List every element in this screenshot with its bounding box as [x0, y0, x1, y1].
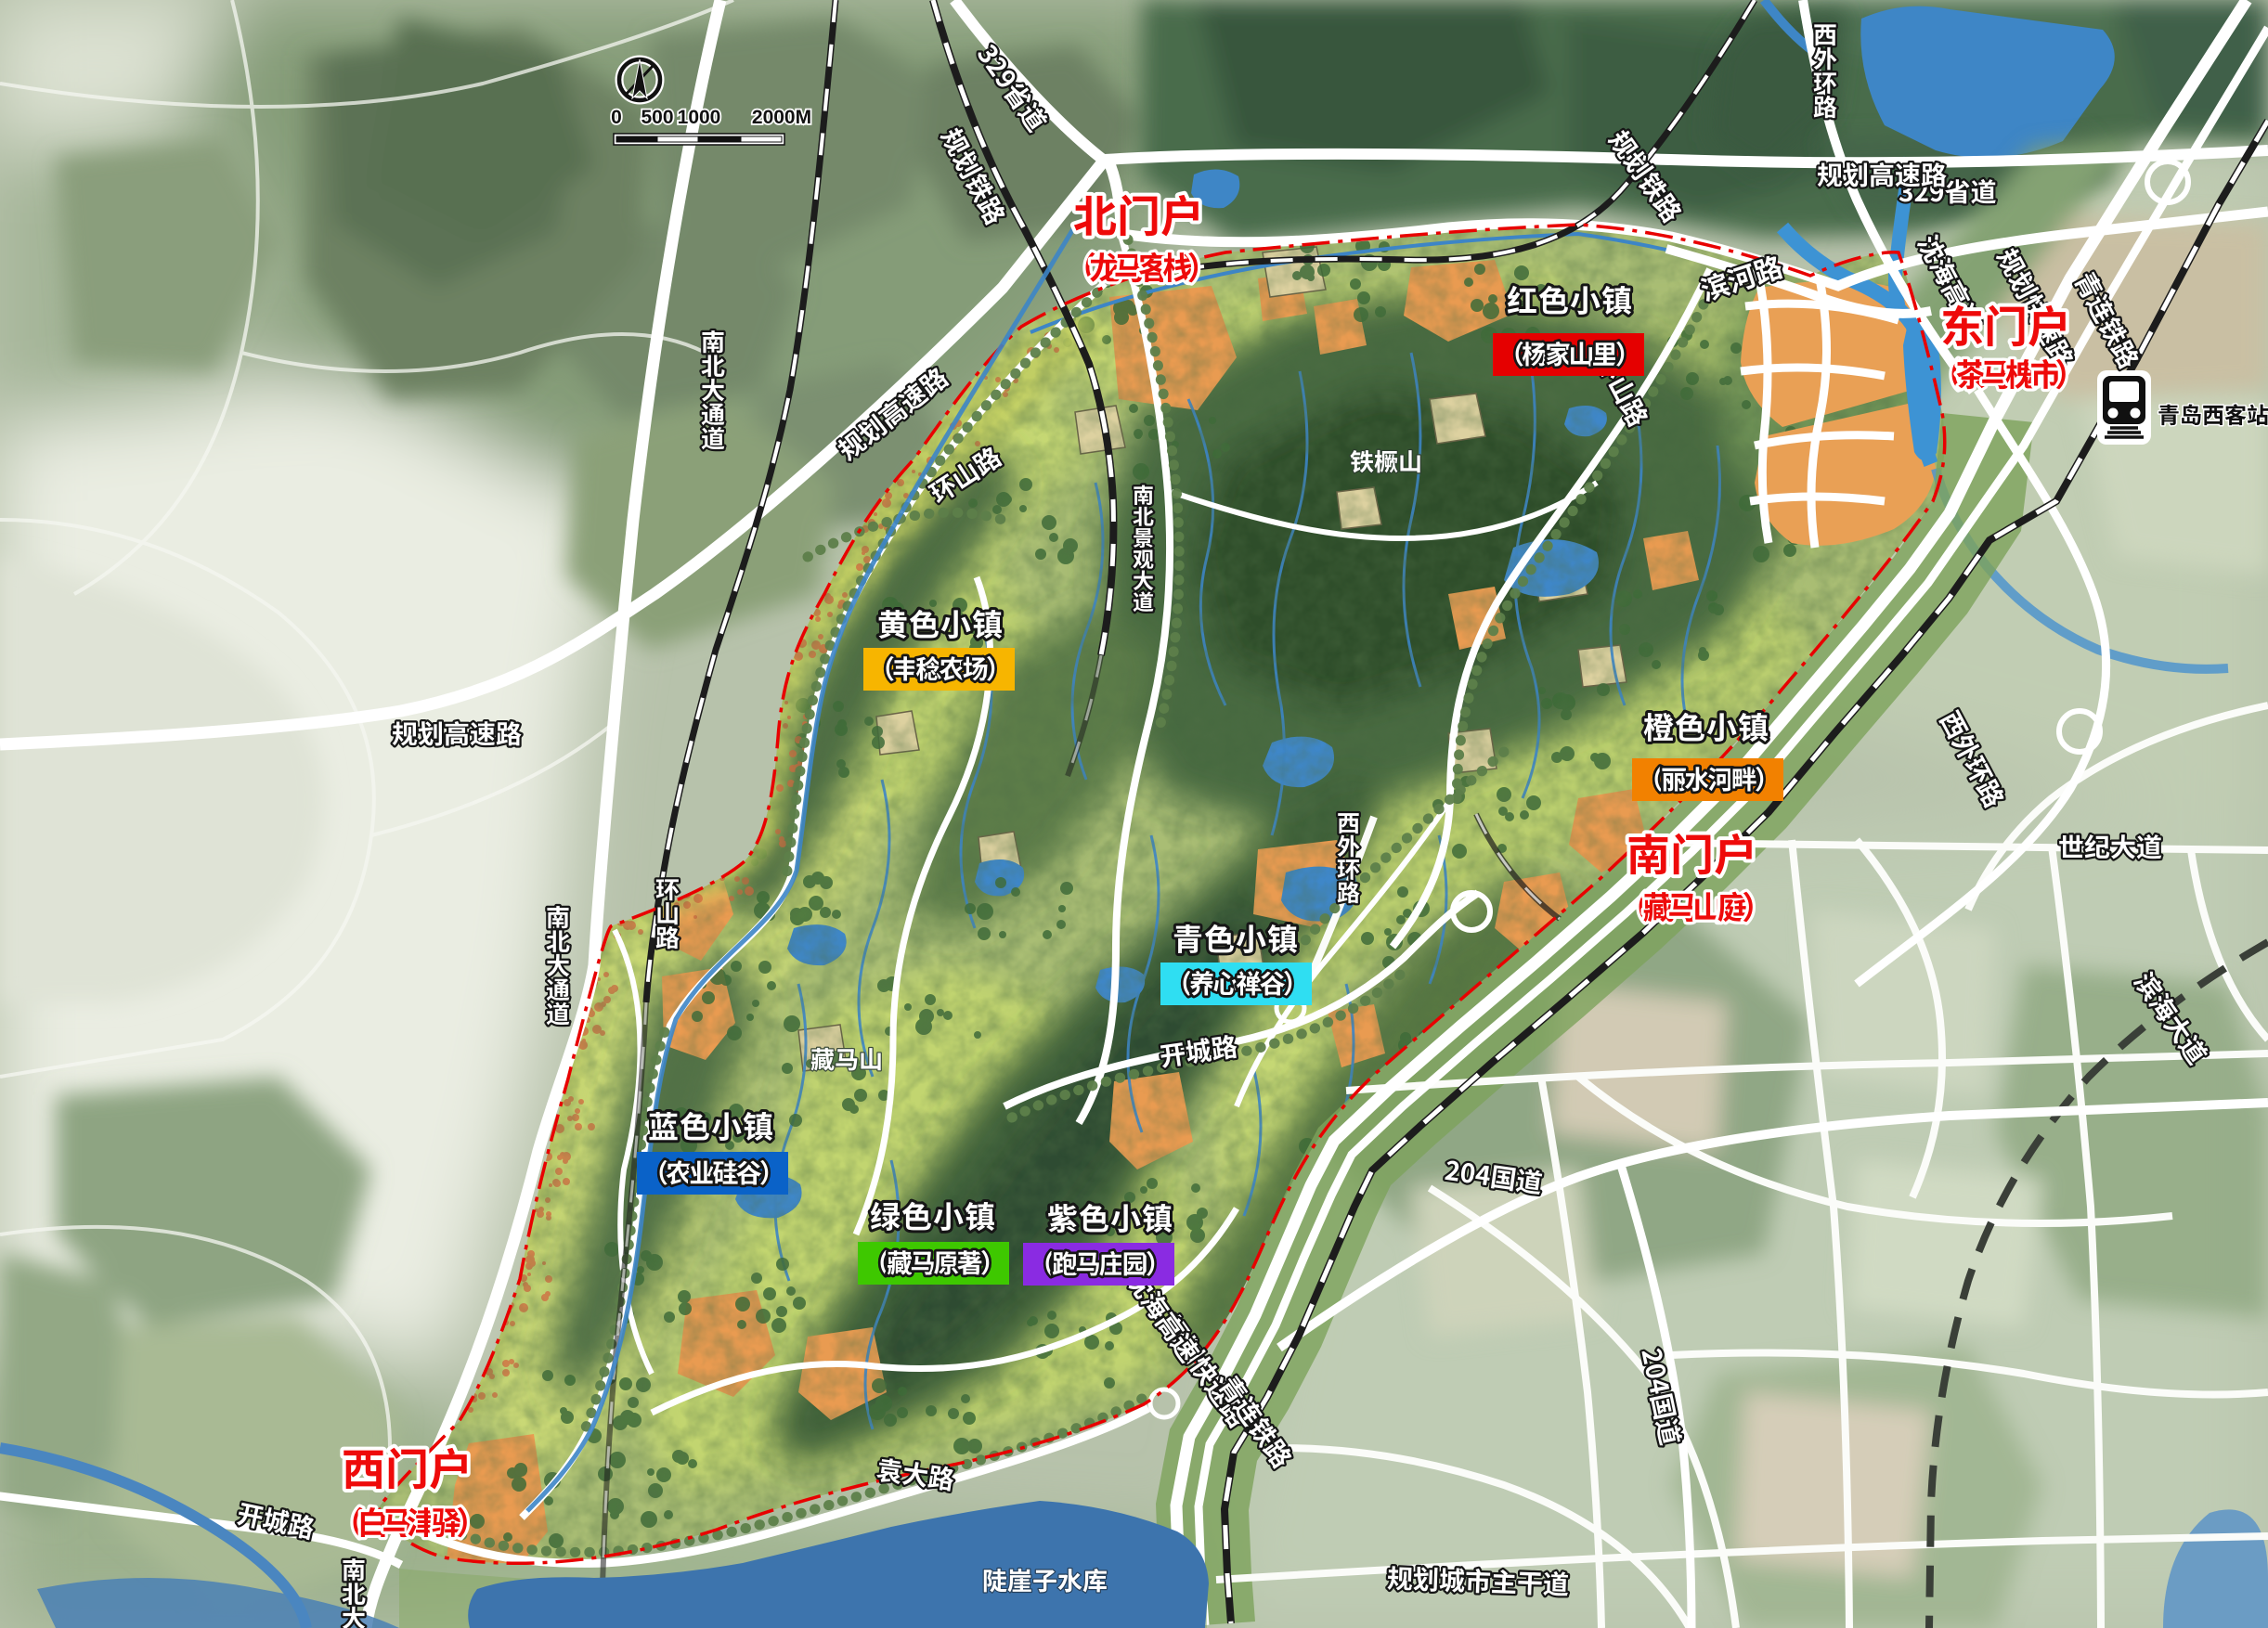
svg-text:500: 500 — [641, 107, 673, 128]
svg-text:0: 0 — [611, 107, 622, 128]
svg-text:1000: 1000 — [678, 107, 721, 128]
svg-text:2000M: 2000M — [752, 107, 811, 128]
